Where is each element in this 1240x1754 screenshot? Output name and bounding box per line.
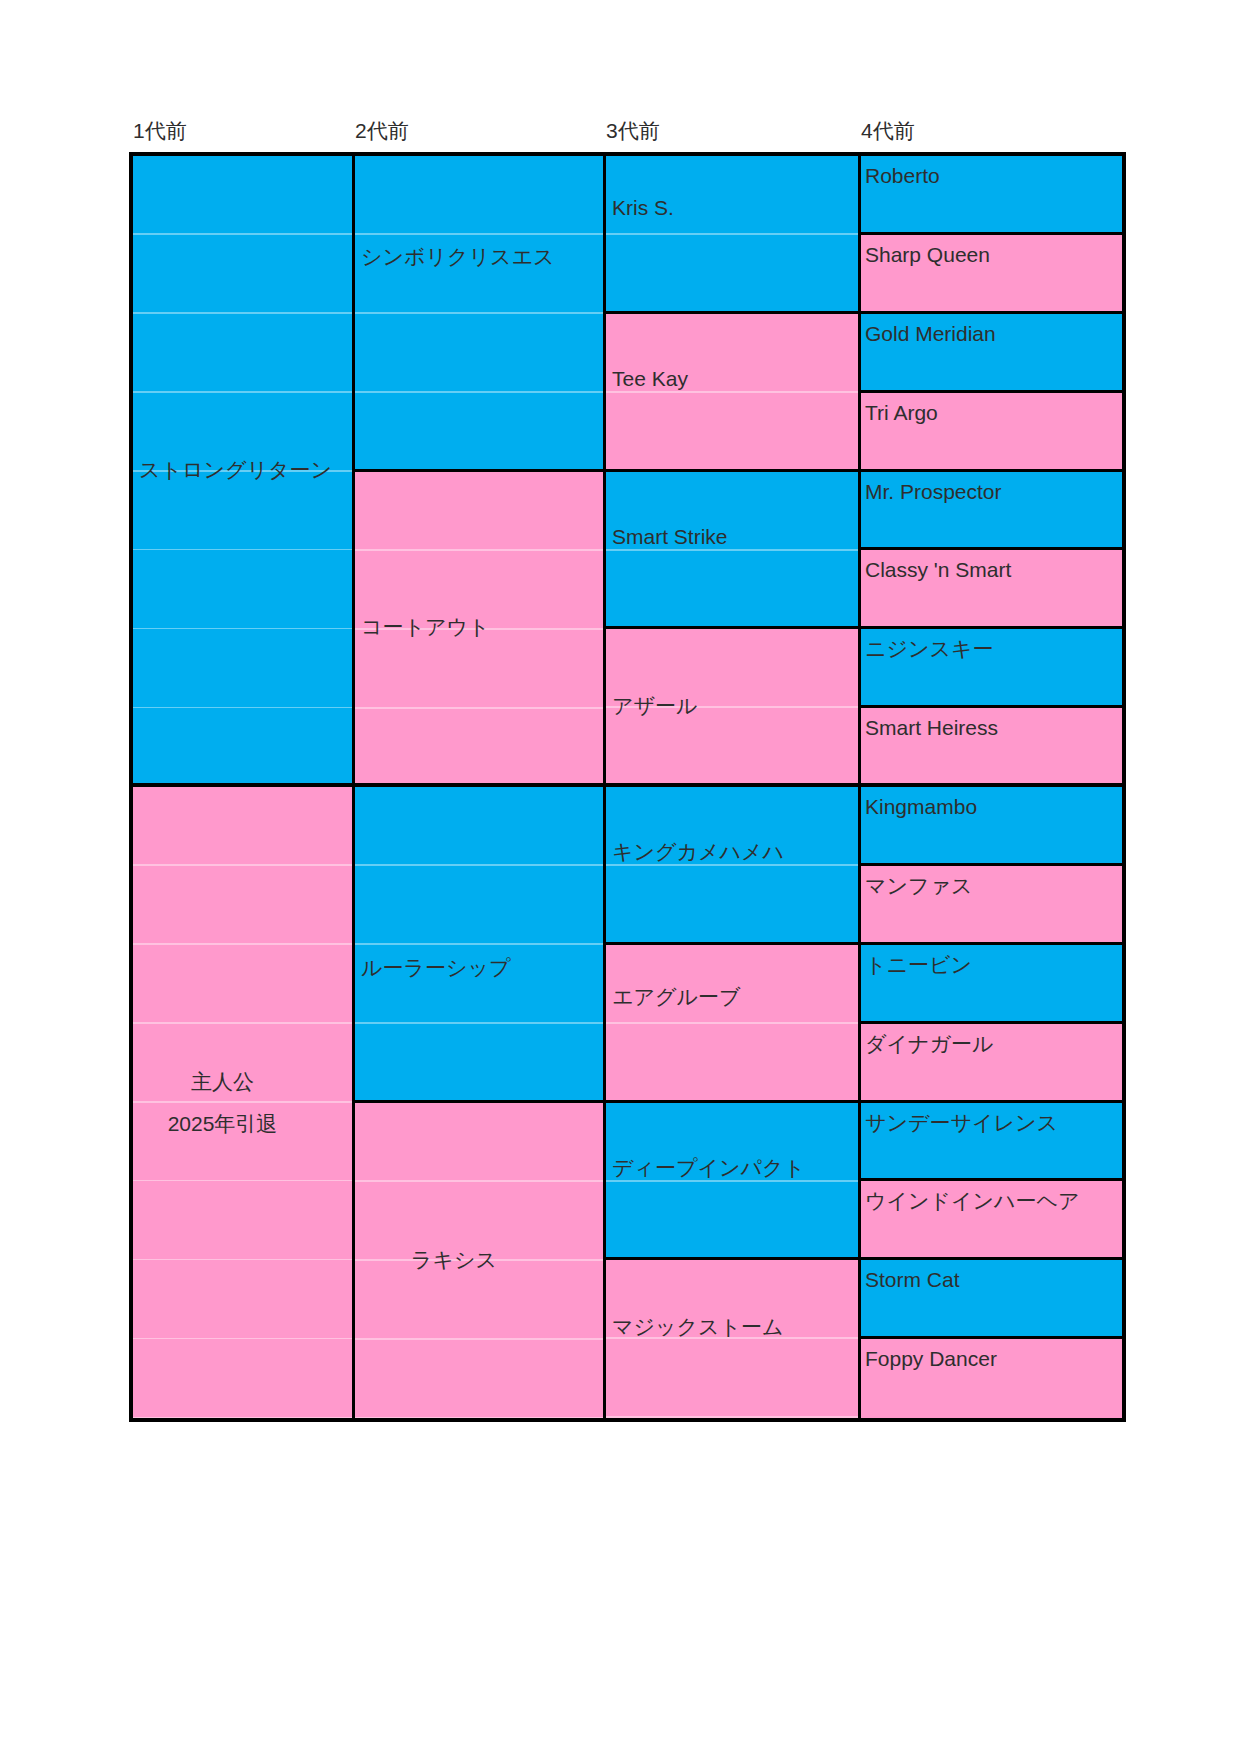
cell-gen1-protagonist: 主人公 2025年引退 bbox=[133, 787, 355, 1418]
cell-gen3-5: エアグルーブ bbox=[606, 945, 861, 1103]
horse-name: エアグルーブ bbox=[612, 984, 740, 1010]
horse-name: ストロングリターン bbox=[139, 457, 332, 483]
horse-name: ディープインパクト bbox=[612, 1155, 805, 1181]
horse-name: ラキシス bbox=[411, 1247, 497, 1273]
cell-gen4-14: Storm Cat bbox=[861, 1260, 1122, 1339]
header-gen1: 1代前 bbox=[129, 117, 351, 145]
horse-name: シンボリクリスエス bbox=[361, 244, 554, 270]
horse-name: Roberto bbox=[865, 164, 940, 187]
horse-name: コートアウト bbox=[361, 614, 489, 640]
horse-name: キングカメハメハ bbox=[612, 839, 784, 865]
cell-gen4-12: サンデーサイレンス bbox=[861, 1103, 1122, 1182]
cell-gen4-15: Foppy Dancer bbox=[861, 1339, 1122, 1418]
horse-name: ルーラーシップ bbox=[361, 955, 510, 981]
horse-name: トニービン bbox=[865, 953, 972, 976]
cell-gen4-5: Classy 'n Smart bbox=[861, 550, 1122, 629]
horse-name: Tee Kay bbox=[612, 366, 688, 392]
cell-gen4-6: ニジンスキー bbox=[861, 629, 1122, 708]
horse-name: Kingmambo bbox=[865, 795, 977, 818]
cell-gen1-sire: ストロングリターン bbox=[133, 156, 355, 787]
horse-name: Gold Meridian bbox=[865, 322, 996, 345]
horse-name: Kris S. bbox=[612, 195, 674, 221]
horse-name: サンデーサイレンス bbox=[865, 1111, 1058, 1134]
header-gen4: 4代前 bbox=[857, 117, 1126, 145]
generation-headers: 1代前 2代前 3代前 4代前 bbox=[129, 117, 1126, 145]
cell-gen3-0: Kris S. bbox=[606, 156, 861, 314]
cell-gen3-1: Tee Kay bbox=[606, 314, 861, 472]
horse-name: ウインドインハーヘア bbox=[865, 1189, 1079, 1212]
horse-name: 主人公 bbox=[191, 1061, 254, 1103]
cell-gen3-2: Smart Strike bbox=[606, 472, 861, 630]
cell-gen4-0: Roberto bbox=[861, 156, 1122, 235]
horse-name: マンファス bbox=[865, 874, 972, 897]
horse-name: Smart Heiress bbox=[865, 716, 998, 739]
cell-gen3-3: アザール bbox=[606, 629, 861, 787]
cell-gen3-6: ディープインパクト bbox=[606, 1103, 861, 1261]
cell-gen4-7: Smart Heiress bbox=[861, 708, 1122, 787]
cell-gen4-8: Kingmambo bbox=[861, 787, 1122, 866]
pedigree-page: 1代前 2代前 3代前 4代前 ストロングリターン 主人公 2025年引退 シン… bbox=[0, 0, 1240, 1754]
horse-name: Storm Cat bbox=[865, 1268, 960, 1291]
cell-gen4-13: ウインドインハーヘア bbox=[861, 1181, 1122, 1260]
cell-gen2-0: シンボリクリスエス bbox=[355, 156, 606, 472]
header-gen2: 2代前 bbox=[351, 117, 602, 145]
header-gen3: 3代前 bbox=[602, 117, 857, 145]
retirement-note: 2025年引退 bbox=[168, 1103, 278, 1145]
cell-gen2-1: コートアウト bbox=[355, 472, 606, 788]
horse-name: Mr. Prospector bbox=[865, 480, 1002, 503]
horse-name: Smart Strike bbox=[612, 524, 728, 550]
cell-gen2-3: ラキシス bbox=[355, 1103, 606, 1419]
cell-gen4-10: トニービン bbox=[861, 945, 1122, 1024]
cell-gen4-2: Gold Meridian bbox=[861, 314, 1122, 393]
cell-gen4-4: Mr. Prospector bbox=[861, 472, 1122, 551]
horse-name: アザール bbox=[612, 693, 697, 719]
cell-gen2-2: ルーラーシップ bbox=[355, 787, 606, 1103]
cell-gen3-7: マジックストーム bbox=[606, 1260, 861, 1418]
cell-gen4-3: Tri Argo bbox=[861, 393, 1122, 472]
pedigree-table: ストロングリターン 主人公 2025年引退 シンボリクリスエス コートアウト ル… bbox=[129, 152, 1126, 1422]
horse-name: Tri Argo bbox=[865, 401, 938, 424]
cell-gen4-9: マンファス bbox=[861, 866, 1122, 945]
horse-name: Sharp Queen bbox=[865, 243, 990, 266]
horse-name: ニジンスキー bbox=[865, 637, 993, 660]
cell-gen4-11: ダイナガール bbox=[861, 1024, 1122, 1103]
horse-name: Foppy Dancer bbox=[865, 1347, 997, 1370]
horse-name: ダイナガール bbox=[865, 1032, 993, 1055]
horse-name: マジックストーム bbox=[612, 1314, 783, 1340]
cell-gen4-1: Sharp Queen bbox=[861, 235, 1122, 314]
horse-name: Classy 'n Smart bbox=[865, 558, 1011, 581]
cell-gen3-4: キングカメハメハ bbox=[606, 787, 861, 945]
